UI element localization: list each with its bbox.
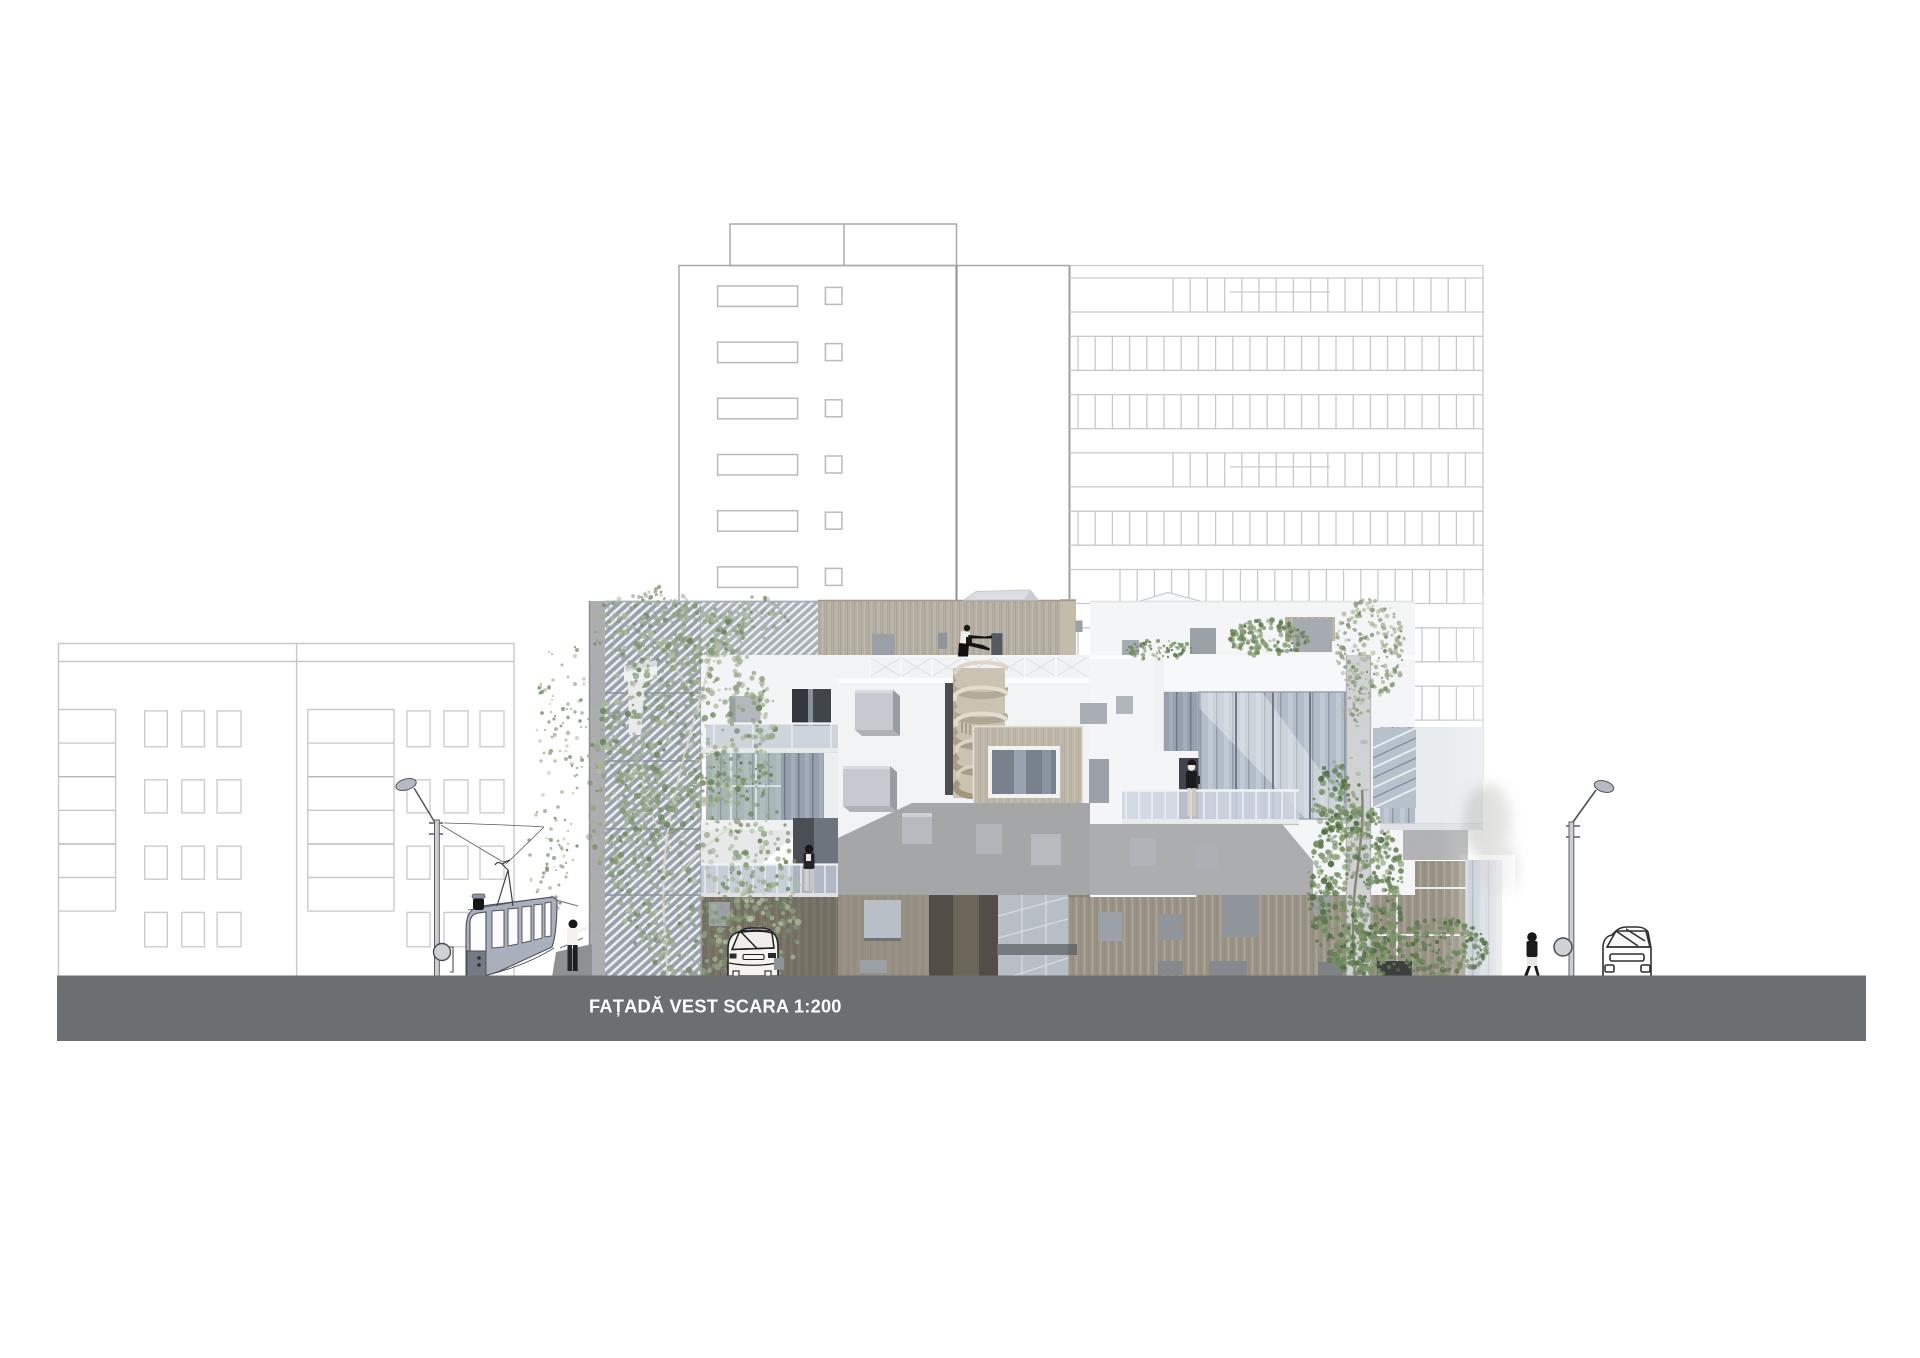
- svg-text:FAȚADĂ VEST SCARA 1:200: FAȚADĂ VEST SCARA 1:200: [589, 996, 842, 1017]
